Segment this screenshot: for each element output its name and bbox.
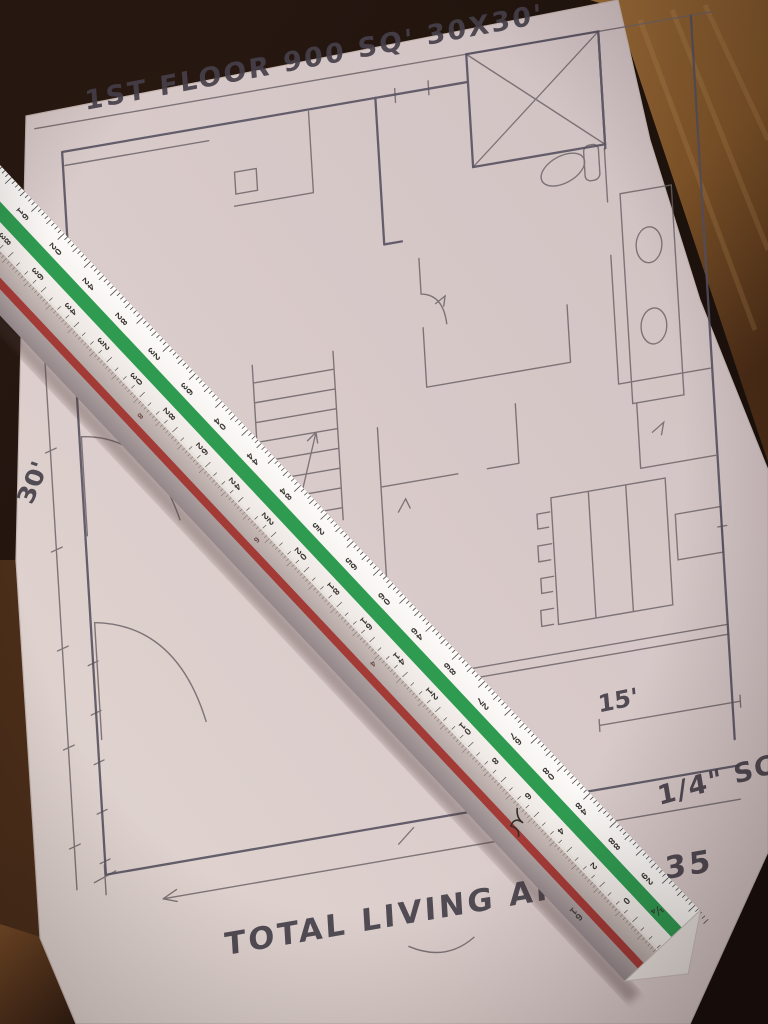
vignette [0, 0, 768, 1024]
scene-svg: 1ST FLOOR 900 SQ' 30X30' TOTAL LIVING AR… [0, 0, 768, 1024]
photo-floorplan-scene: 1ST FLOOR 900 SQ' 30X30' TOTAL LIVING AR… [0, 0, 768, 1024]
